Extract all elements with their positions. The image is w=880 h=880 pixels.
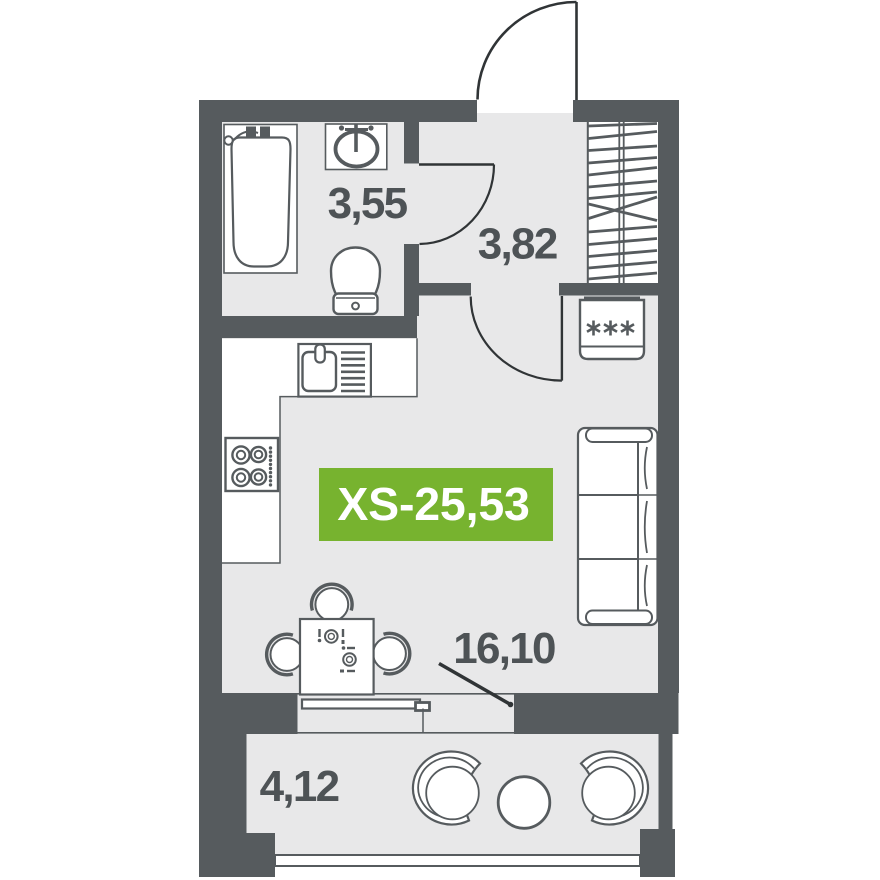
- svg-text:4,12: 4,12: [260, 762, 339, 811]
- svg-text:3,82: 3,82: [478, 220, 557, 269]
- svg-text:3,55: 3,55: [328, 179, 408, 228]
- svg-text:XS-25,53: XS-25,53: [337, 478, 529, 530]
- svg-text:16,10: 16,10: [453, 624, 555, 673]
